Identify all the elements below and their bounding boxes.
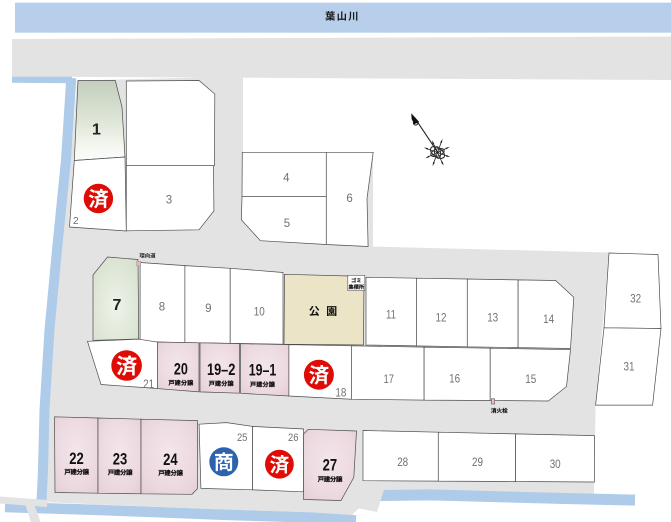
- svg-text:2: 2: [73, 215, 79, 227]
- svg-text:10: 10: [254, 307, 265, 319]
- svg-text:14: 14: [543, 314, 555, 326]
- svg-text:17: 17: [384, 374, 395, 386]
- svg-text:30: 30: [550, 459, 561, 471]
- svg-text:24: 24: [163, 450, 178, 469]
- svg-text:9: 9: [205, 303, 211, 315]
- svg-text:19–2: 19–2: [207, 360, 236, 379]
- svg-text:5: 5: [284, 218, 290, 230]
- svg-text:7: 7: [113, 297, 122, 314]
- svg-text:27: 27: [323, 455, 338, 474]
- svg-text:13: 13: [487, 313, 498, 325]
- svg-text:6: 6: [346, 193, 352, 205]
- svg-text:8: 8: [159, 301, 165, 313]
- svg-text:21: 21: [143, 379, 154, 391]
- svg-text:3: 3: [166, 194, 172, 206]
- svg-text:18: 18: [335, 388, 346, 400]
- svg-text:4: 4: [283, 173, 290, 185]
- svg-text:28: 28: [397, 457, 408, 469]
- svg-text:23: 23: [113, 449, 128, 468]
- svg-text:16: 16: [449, 374, 460, 386]
- svg-text:31: 31: [624, 362, 635, 374]
- svg-text:12: 12: [436, 312, 447, 324]
- svg-text:32: 32: [630, 294, 641, 306]
- svg-text:1: 1: [92, 122, 101, 139]
- svg-text:29: 29: [472, 457, 483, 469]
- svg-text:20: 20: [174, 360, 188, 379]
- svg-text:11: 11: [386, 310, 396, 322]
- svg-text:22: 22: [69, 449, 84, 468]
- svg-text:15: 15: [525, 374, 536, 386]
- svg-text:25: 25: [237, 432, 248, 444]
- svg-text:26: 26: [288, 432, 299, 444]
- svg-text:19–1: 19–1: [249, 361, 277, 380]
